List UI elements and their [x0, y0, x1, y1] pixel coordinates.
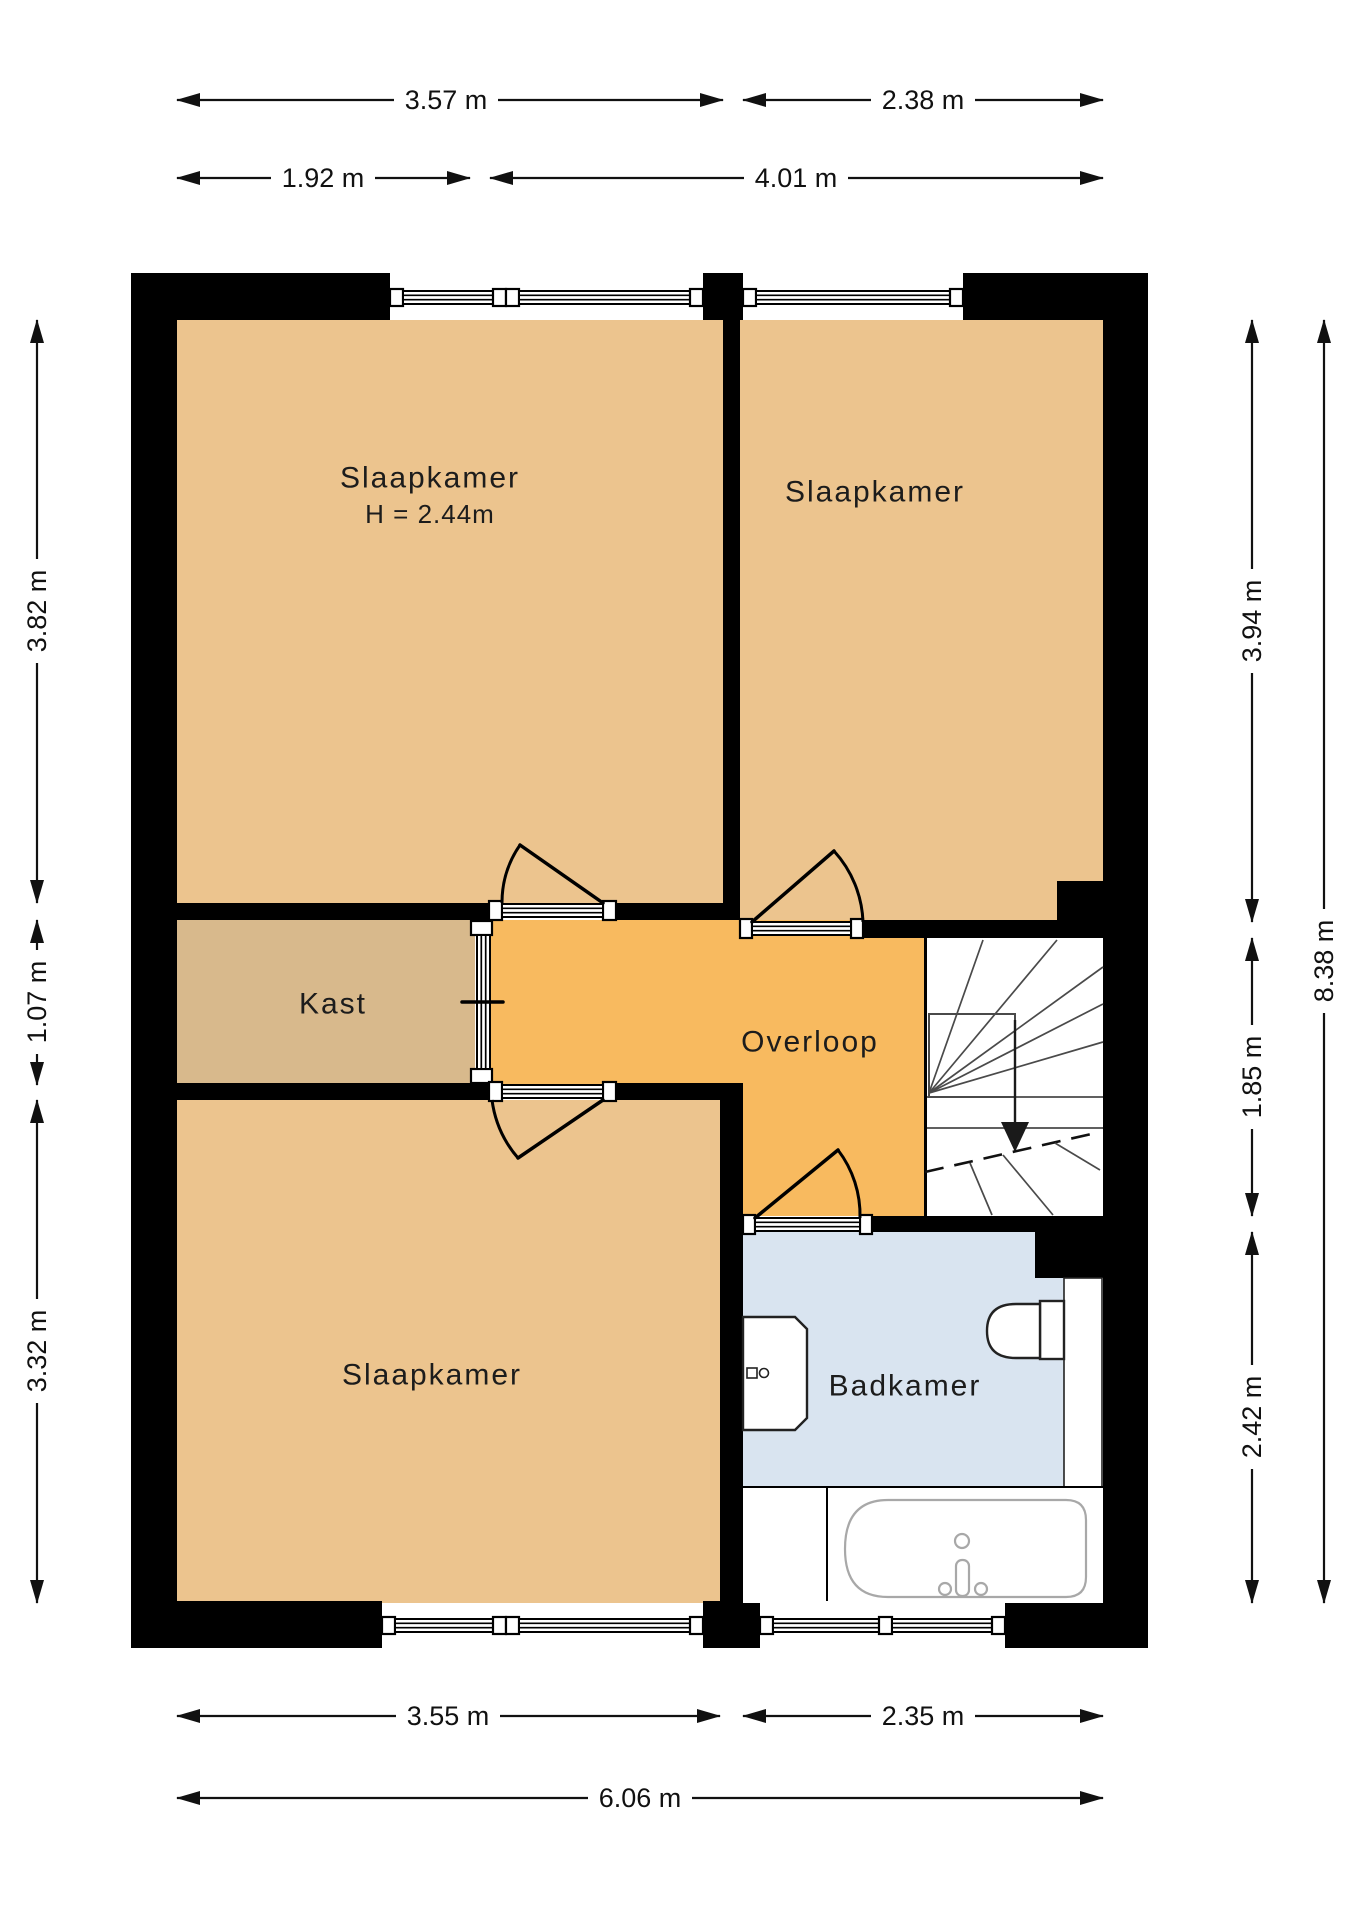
- window-frame-block: [506, 1617, 519, 1634]
- door-jamb-block: [851, 919, 863, 938]
- sink-faucet: [747, 1368, 757, 1378]
- window-symbol: [519, 1619, 690, 1632]
- dim-label-bottom1-right: 2.35 m: [882, 1701, 965, 1731]
- bathtub-tap-right: [975, 1583, 987, 1595]
- wall-bathroom-top: [872, 1216, 1103, 1232]
- label-landing: Overloop: [741, 1026, 879, 1059]
- wall-bottom-seg2: [703, 1601, 760, 1648]
- door-jamb-block: [860, 1215, 872, 1234]
- window-symbol: [403, 291, 493, 304]
- dim-label-right-top: 3.94 m: [1237, 580, 1267, 663]
- window-symbol: [756, 291, 950, 304]
- dim-label-top2-left: 1.92 m: [282, 163, 365, 193]
- window-frame-block: [950, 289, 963, 306]
- room-bedroom-top-left: [177, 320, 723, 903]
- window-symbol: [395, 1619, 493, 1632]
- wall-bedroom1-bottom-right: [616, 903, 740, 920]
- dim-label-right-total: 8.38 m: [1309, 920, 1339, 1003]
- room-landing-upper: [490, 920, 925, 1085]
- wall-top-seg2: [703, 273, 743, 320]
- bathtub-faucet: [956, 1560, 969, 1596]
- toilet-tank: [1040, 1301, 1064, 1359]
- door-jamb-block: [603, 1082, 616, 1101]
- label-ceiling-height: H = 2.44m: [365, 499, 495, 529]
- dim-label-top2-right: 4.01 m: [755, 163, 838, 193]
- door-threshold: [502, 904, 603, 917]
- wall-top-seg1: [131, 273, 390, 320]
- wall-bathroom-pier: [1035, 1230, 1103, 1278]
- toilet-bowl: [987, 1304, 1040, 1358]
- room-fills: [177, 320, 1103, 1603]
- label-bedroom-top-left: Slaapkamer: [340, 462, 520, 495]
- window-frame-block: [992, 1617, 1005, 1634]
- floorplan-drawing: Slaapkamer H = 2.44m Slaapkamer Kast Ove…: [0, 0, 1358, 1920]
- dim-label-left-bottom: 3.32 m: [22, 1310, 52, 1393]
- door-jamb-block: [471, 921, 492, 935]
- door-threshold: [752, 922, 851, 935]
- window-frame-block: [493, 289, 506, 306]
- wall-bedroom3-right: [720, 1083, 743, 1605]
- wall-bedroom3-top-left: [177, 1083, 493, 1100]
- window-frame-block: [390, 289, 403, 306]
- wall-right: [1103, 273, 1148, 1648]
- dim-label-left-middle: 1.07 m: [22, 961, 52, 1044]
- room-bedroom-top-right: [740, 320, 1103, 922]
- dim-label-top1-left: 3.57 m: [405, 85, 488, 115]
- window-frame-block: [760, 1617, 773, 1634]
- bathtub-drain: [955, 1534, 969, 1548]
- window-frame-block: [506, 289, 519, 306]
- door-jamb-block: [603, 901, 616, 920]
- floorplan-canvas: Slaapkamer H = 2.44m Slaapkamer Kast Ove…: [0, 0, 1358, 1920]
- dim-label-left-top: 3.82 m: [22, 570, 52, 653]
- bathtub-tap-left: [939, 1583, 951, 1595]
- wall-bottom-seg1: [131, 1601, 382, 1648]
- dim-label-bottom1-left: 3.55 m: [407, 1701, 490, 1731]
- wall-bedroom3-top-right: [616, 1083, 723, 1100]
- room-landing-lower: [743, 1083, 925, 1216]
- dim-label-right-middle: 1.85 m: [1237, 1036, 1267, 1119]
- sink-tap: [760, 1369, 769, 1378]
- dim-label-bottom-total: 6.06 m: [599, 1783, 682, 1813]
- window-symbol: [519, 291, 690, 304]
- dimensions-bottom: 3.55 m 2.35 m 6.06 m: [177, 1701, 1103, 1813]
- window-frame-block: [743, 289, 756, 306]
- dim-label-right-bottom: 2.42 m: [1237, 1376, 1267, 1459]
- window-symbol: [773, 1619, 879, 1632]
- window-symbol: [892, 1619, 992, 1632]
- window-frame-block: [382, 1617, 395, 1634]
- wall-between-bedrooms: [723, 320, 740, 920]
- label-closet: Kast: [299, 988, 367, 1021]
- label-bedroom-top-right: Slaapkamer: [785, 476, 965, 509]
- window-frame-block: [493, 1617, 506, 1634]
- dim-label-top1-right: 2.38 m: [882, 85, 965, 115]
- dimensions-left: 3.82 m 1.07 m 3.32 m: [22, 320, 52, 1603]
- label-bathroom: Badkamer: [829, 1370, 982, 1403]
- windows-top: [390, 289, 963, 306]
- door-threshold: [755, 1218, 860, 1231]
- door-threshold: [502, 1085, 603, 1098]
- door-jamb-block: [743, 1215, 755, 1234]
- room-bedroom-bottom: [177, 1100, 720, 1603]
- wall-bedroom2-bottom: [863, 920, 1057, 938]
- wall-bedroom2-notch: [1057, 881, 1103, 938]
- door-jamb-block: [489, 901, 502, 920]
- dimensions-right: 3.94 m 1.85 m 2.42 m 8.38 m: [1237, 320, 1339, 1603]
- dimensions-top: 3.57 m 2.38 m 1.92 m 4.01 m: [177, 85, 1103, 193]
- door-jamb-block: [740, 919, 752, 938]
- wall-bottom-seg3: [1005, 1601, 1148, 1648]
- stairwell-edge-line: [924, 937, 927, 1216]
- label-bedroom-bottom: Slaapkamer: [342, 1359, 522, 1392]
- wall-bedroom1-bottom-left: [177, 903, 492, 920]
- wall-top-seg3: [963, 273, 1148, 320]
- window-frame-block: [879, 1617, 892, 1634]
- door-jamb-block: [489, 1082, 502, 1101]
- window-frame-block: [690, 1617, 703, 1634]
- wall-left: [131, 273, 177, 1648]
- duct-niche: [1064, 1278, 1102, 1487]
- window-frame-block: [690, 289, 703, 306]
- windows-bottom: [382, 1617, 1005, 1634]
